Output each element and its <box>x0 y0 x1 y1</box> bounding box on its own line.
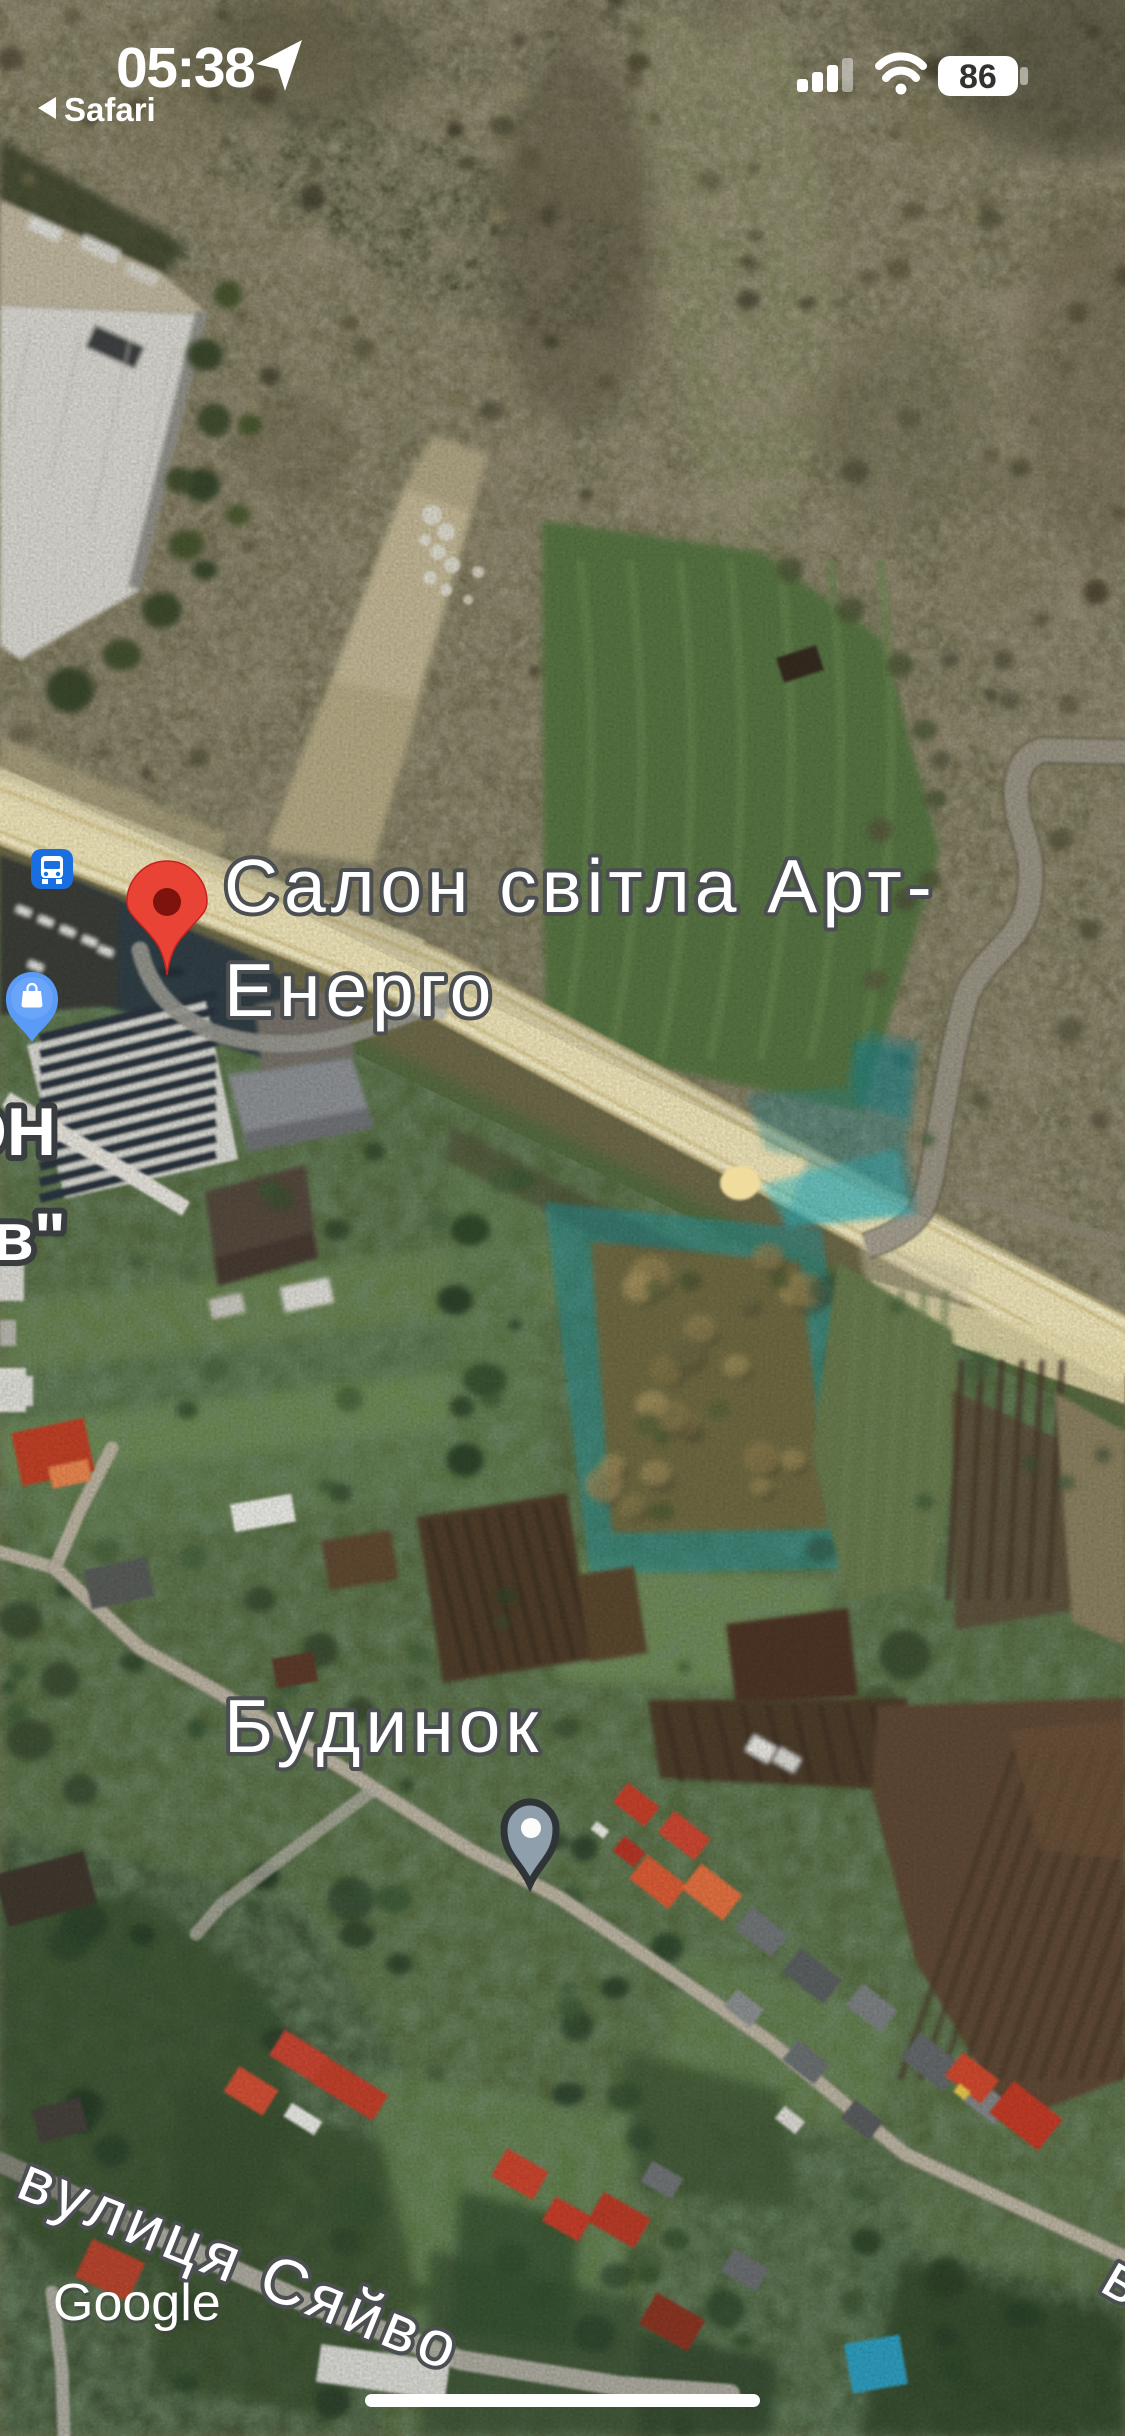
svg-text:Салон світла Арт-: Салон світла Арт- <box>224 844 937 928</box>
svg-text:Будинок: Будинок <box>224 1684 543 1768</box>
svg-text:Google: Google <box>53 2274 221 2332</box>
svg-text:в": в" <box>0 1199 66 1275</box>
svg-text:86: 86 <box>959 58 997 96</box>
svg-text:Safari: Safari <box>64 91 156 128</box>
svg-text:Енерго: Енерго <box>224 948 496 1032</box>
svg-text:ОН: ОН <box>0 1094 56 1170</box>
